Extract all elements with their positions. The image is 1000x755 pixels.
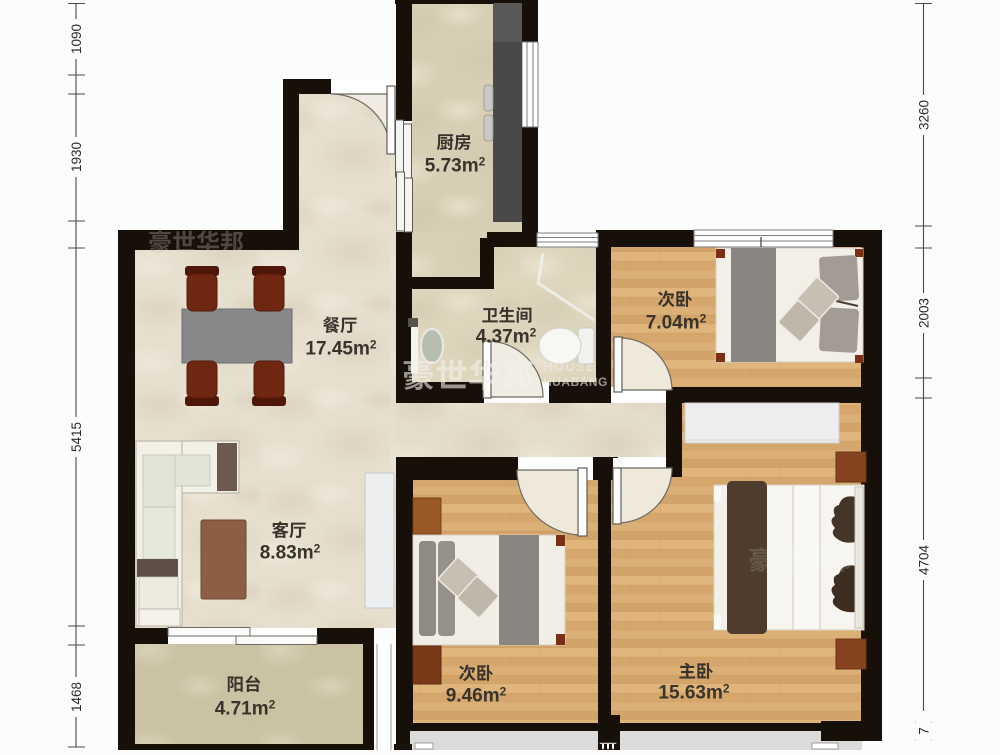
svg-text:HOUSE: HOUSE [543,359,597,374]
svg-text:17.45m2: 17.45m2 [305,338,376,360]
svg-text:4704: 4704 [917,544,932,575]
svg-text:4.37m2: 4.37m2 [476,326,537,348]
svg-text:1468: 1468 [69,682,84,712]
svg-text:15.63m2: 15.63m2 [658,682,729,704]
svg-text:7: 7 [917,727,932,735]
svg-text:9.46m2: 9.46m2 [446,685,507,707]
svg-text:5.73m2: 5.73m2 [425,155,486,177]
svg-text:7.04m2: 7.04m2 [646,312,707,334]
svg-text:1930: 1930 [69,142,84,172]
svg-text:3260: 3260 [917,100,932,130]
svg-text:5415: 5415 [69,422,84,452]
svg-text:1090: 1090 [69,24,84,54]
svg-text:2003: 2003 [917,298,932,328]
svg-text:4.71m2: 4.71m2 [215,698,276,720]
svg-text:8.83m2: 8.83m2 [260,542,321,564]
svg-text:HUABANG: HUABANG [543,375,608,389]
